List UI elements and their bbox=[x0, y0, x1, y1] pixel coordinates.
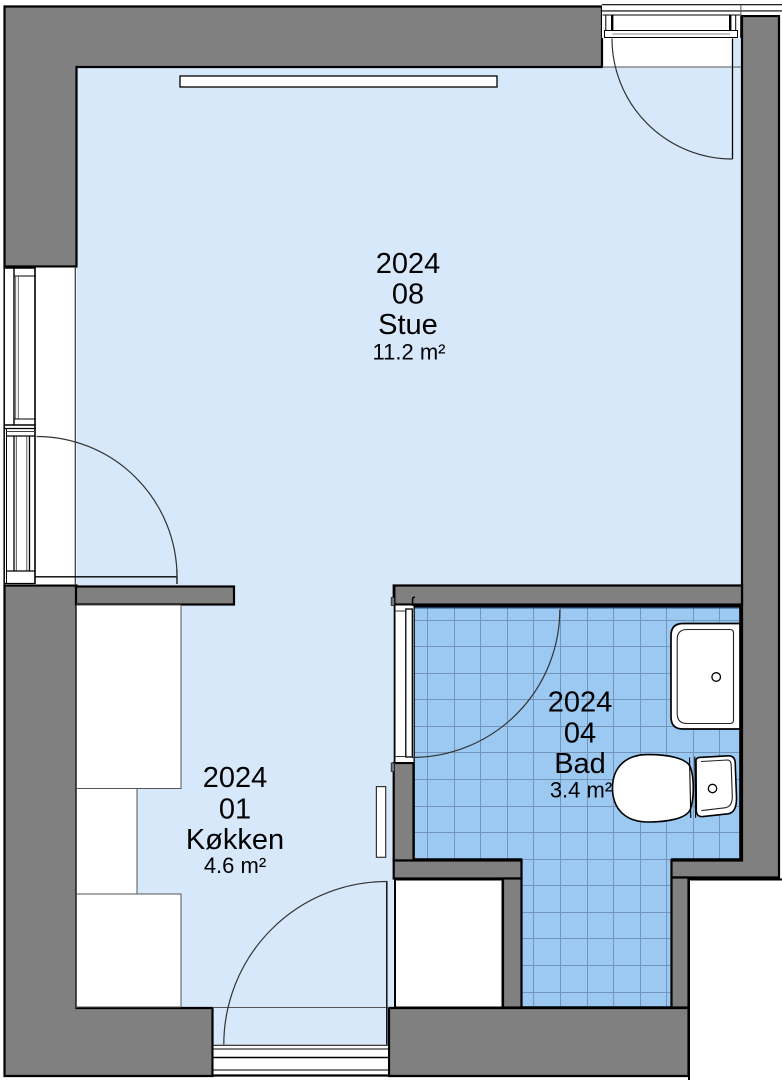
svg-text:3.4 m²: 3.4 m² bbox=[550, 778, 612, 803]
svg-text:Bad: Bad bbox=[554, 748, 606, 780]
svg-text:4.6 m²: 4.6 m² bbox=[204, 853, 266, 878]
svg-text:01: 01 bbox=[219, 794, 251, 826]
svg-text:Stue: Stue bbox=[378, 309, 438, 341]
svg-text:Køkken: Køkken bbox=[186, 824, 284, 856]
svg-text:04: 04 bbox=[564, 718, 596, 750]
svg-text:11.2 m²: 11.2 m² bbox=[373, 340, 446, 365]
svg-text:2024: 2024 bbox=[548, 687, 613, 719]
svg-text:08: 08 bbox=[392, 279, 424, 311]
svg-text:2024: 2024 bbox=[376, 248, 441, 280]
svg-text:2024: 2024 bbox=[203, 762, 268, 794]
